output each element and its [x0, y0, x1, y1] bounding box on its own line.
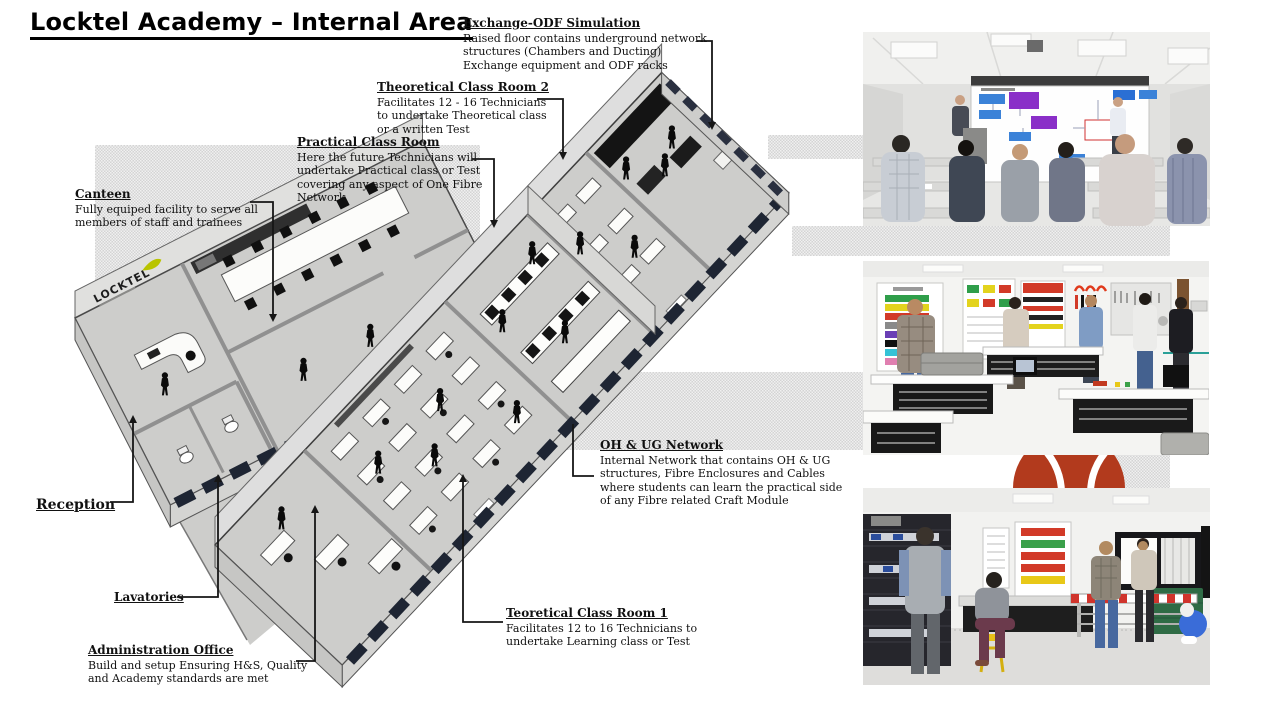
annotation-exchange-odf: Exchange-ODF Simulation Raised floor con… — [463, 12, 713, 72]
annotation-heading: Canteen — [75, 187, 131, 201]
annotation-theoretical-2: Theoretical Class Room 2 Facilitates 12 … — [377, 76, 577, 136]
photo-practical-lab — [863, 261, 1209, 455]
annotation-heading: Practical Class Room — [297, 135, 440, 149]
photo-test-lab — [863, 488, 1210, 685]
annotation-teoretical-1: Teoretical Class Room 1 Facilitates 12 t… — [506, 602, 726, 649]
annotation-heading: Teoretical Class Room 1 — [506, 606, 668, 620]
annotation-ohug: OH & UG Network Internal Network that co… — [600, 434, 850, 508]
annotation-body: Build and setup Ensuring H&S, Quality an… — [88, 659, 328, 686]
annotation-heading: Reception — [36, 497, 115, 513]
annotation-heading: Administration Office — [88, 643, 233, 657]
test-lab-scene — [863, 488, 1210, 685]
presenter-head — [955, 95, 965, 105]
screen-bar — [971, 76, 1149, 86]
annotation-heading: OH & UG Network — [600, 438, 723, 452]
page-title: Locktel Academy – Internal Area — [30, 8, 473, 40]
annotation-heading: Theoretical Class Room 2 — [377, 80, 549, 94]
annotation-canteen: Canteen Fully equiped facility to serve … — [75, 183, 285, 230]
annotation-lavatories: Lavatories — [114, 586, 184, 605]
wall-chart — [1015, 522, 1071, 596]
theory-classroom-scene — [863, 32, 1210, 226]
photo-theory-classroom — [863, 32, 1210, 226]
annotation-body: Fully equiped facility to serve all memb… — [75, 203, 285, 230]
annotation-admin: Administration Office Build and setup En… — [88, 639, 328, 686]
projector — [1027, 40, 1043, 52]
annotation-practical: Practical Class Room Here the future Tec… — [297, 131, 497, 205]
slide-canvas: LOCKTEL — [0, 0, 1278, 718]
window — [1115, 526, 1210, 598]
annotation-body: Facilitates 12 to 16 Technicians to unde… — [506, 622, 726, 649]
annotation-body: Here the future Technicians will underta… — [297, 151, 497, 205]
practical-lab-scene — [863, 261, 1209, 455]
annotation-body: Raised floor contains underground networ… — [463, 32, 713, 72]
annotation-body: Internal Network that contains OH & UG s… — [600, 454, 850, 508]
annotation-reception: Reception — [36, 494, 115, 513]
annotation-heading: Exchange-ODF Simulation — [463, 16, 640, 30]
annotation-heading: Lavatories — [114, 590, 184, 604]
